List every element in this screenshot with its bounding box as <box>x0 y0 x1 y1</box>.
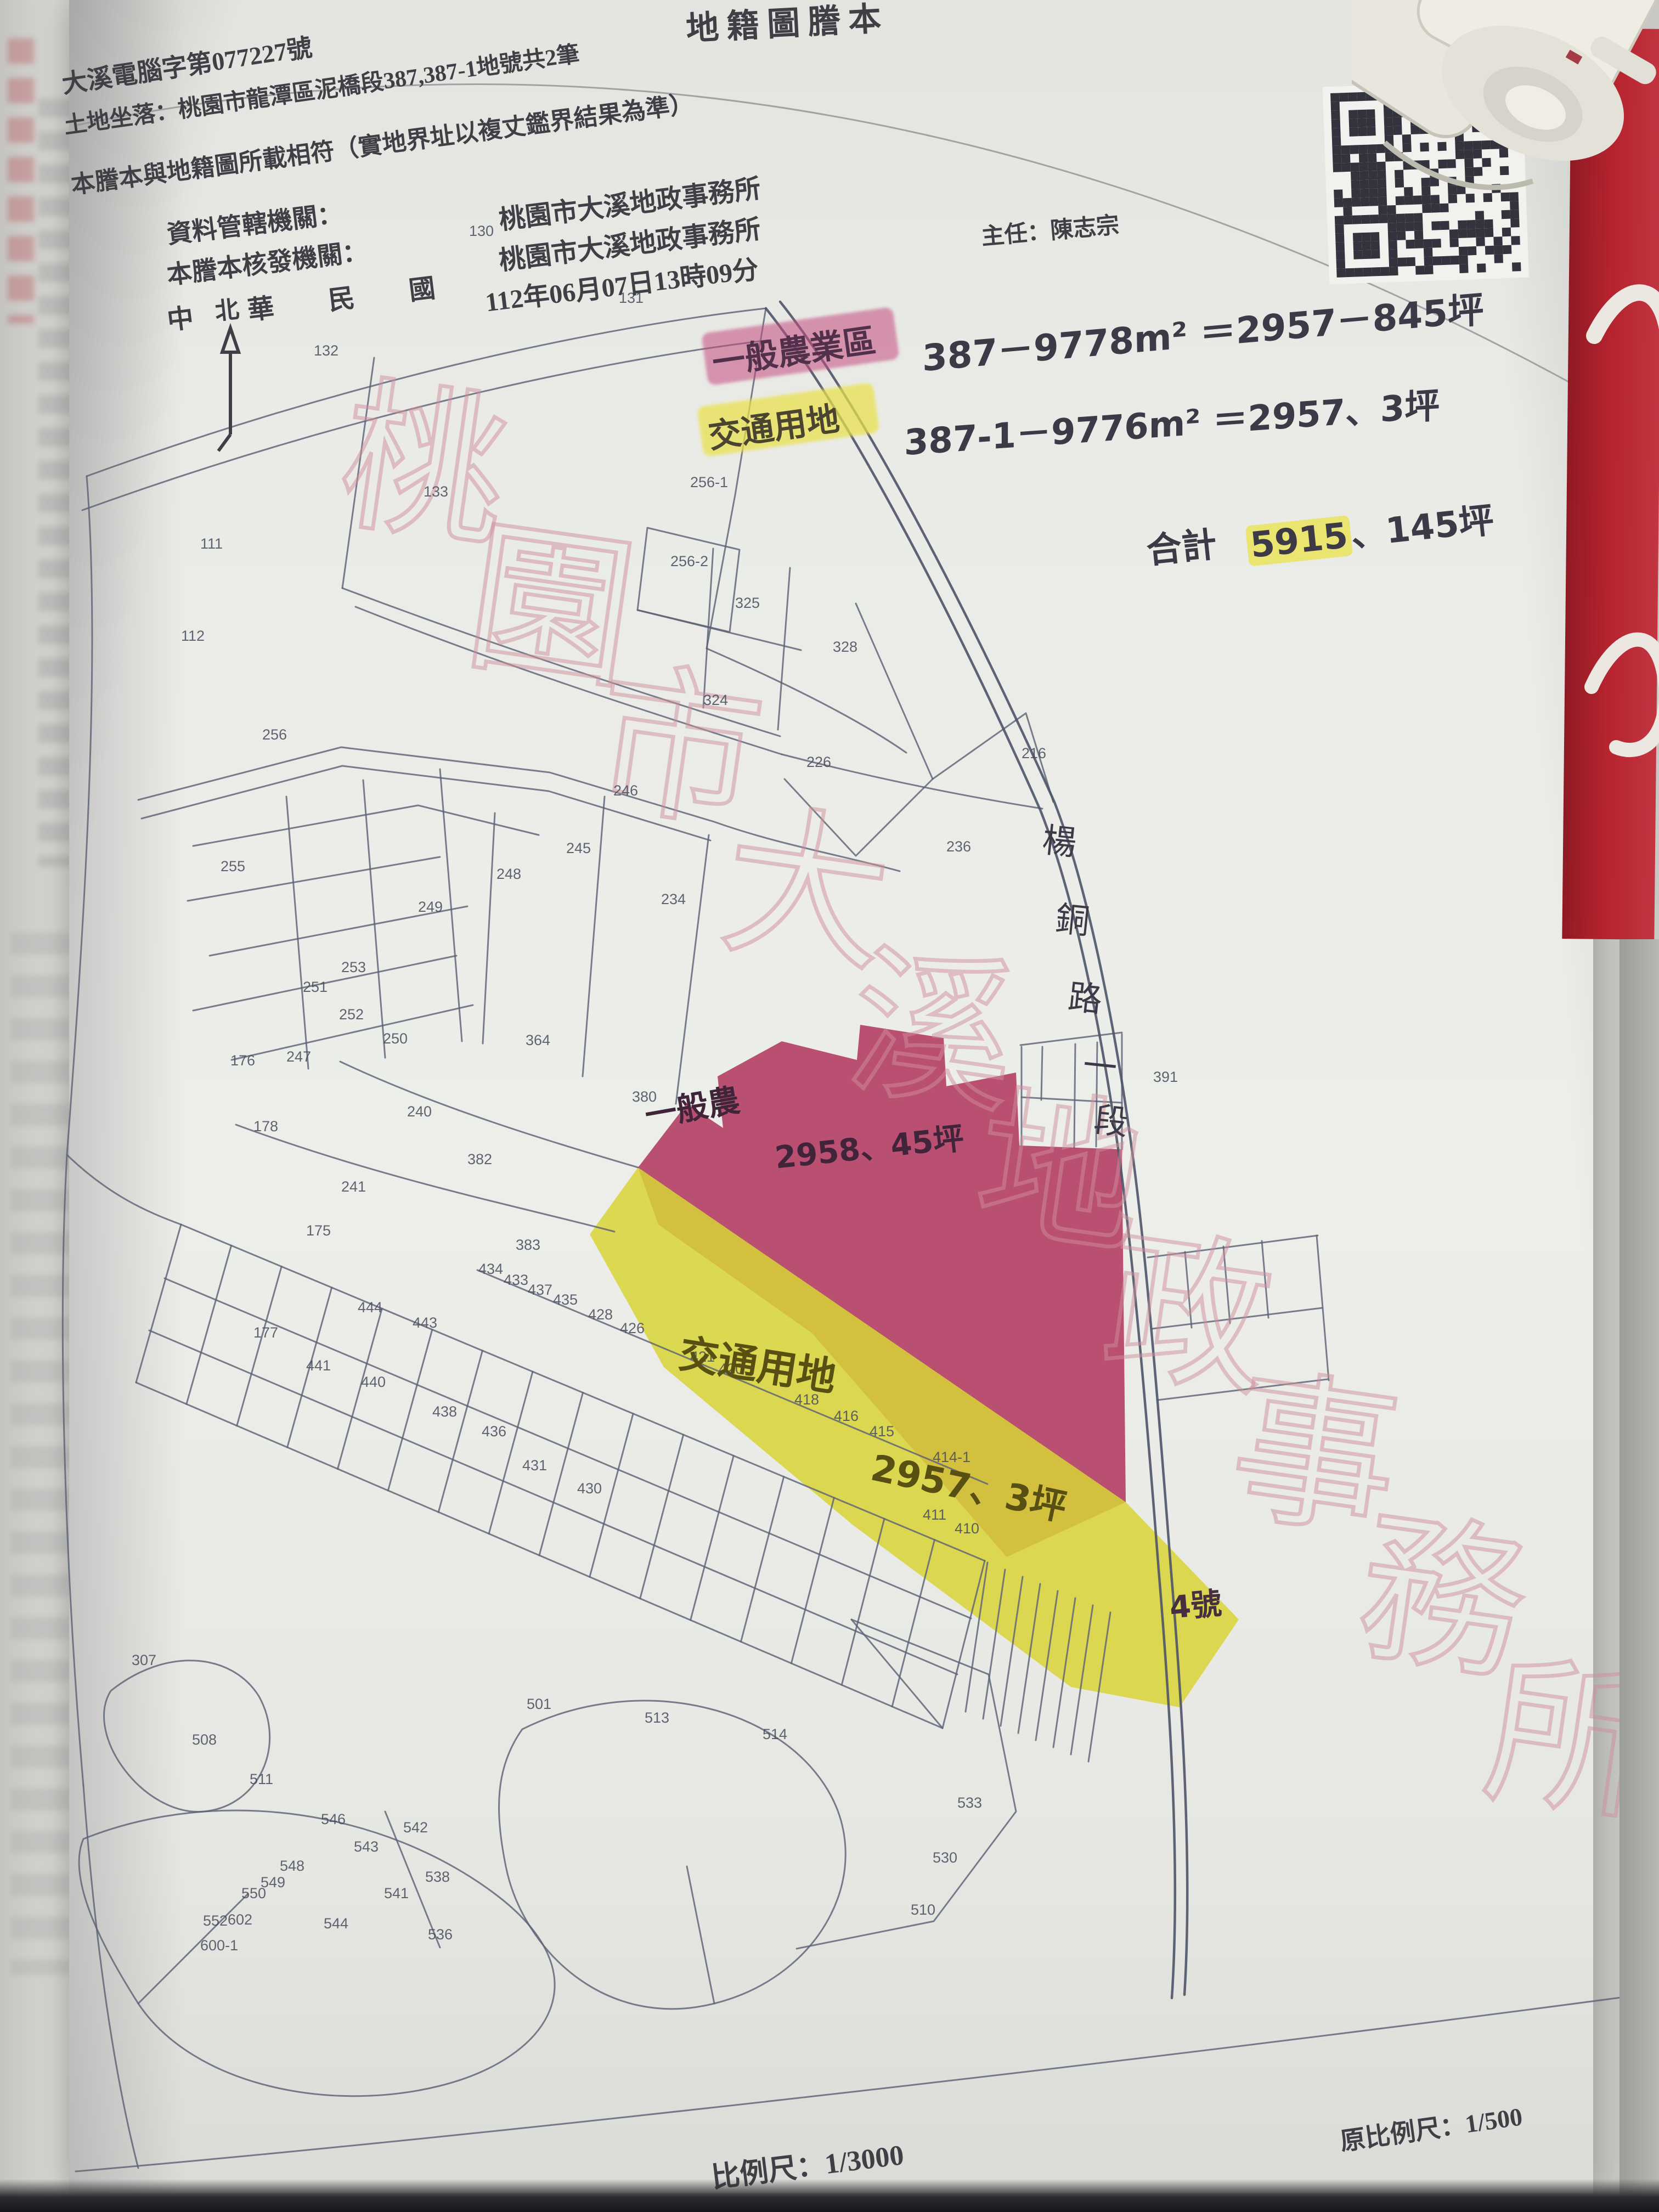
qr-module <box>1331 101 1340 111</box>
qr-module <box>1336 268 1346 278</box>
qr-module <box>1341 154 1351 163</box>
parcel-number: 253 <box>341 959 366 975</box>
parcel-number: 546 <box>321 1811 346 1827</box>
note-total-highlighted: 5915 <box>1245 515 1353 566</box>
qr-module <box>1333 154 1342 163</box>
note-total-label: 合計 <box>1144 516 1219 574</box>
parcel-number: 415 <box>870 1423 894 1440</box>
parcel-number: 410 <box>955 1520 979 1537</box>
parcel-number: 428 <box>588 1306 613 1323</box>
qr-module <box>1343 207 1352 216</box>
parcel-number: 328 <box>833 639 857 655</box>
parcel-number: 177 <box>253 1324 278 1341</box>
parcel-number: 552 <box>203 1912 228 1929</box>
qr-module <box>1341 145 1350 155</box>
qr-module <box>1344 216 1353 225</box>
parcel-number: 548 <box>280 1858 304 1874</box>
parcel-number: 542 <box>403 1819 428 1836</box>
parcel-number: 324 <box>703 692 728 708</box>
parcel-number: 256-1 <box>690 474 728 490</box>
qr-module <box>1335 224 1344 234</box>
parcel-number: 226 <box>806 754 831 770</box>
qr-module <box>1332 145 1341 155</box>
parcel-number: 247 <box>286 1048 311 1065</box>
parcel-number: 536 <box>428 1926 453 1943</box>
grid-parcel-divider <box>489 1372 533 1533</box>
parcel-number: 176 <box>230 1052 255 1069</box>
parcel-number: 256 <box>262 726 287 743</box>
parcel-number: 250 <box>383 1030 408 1047</box>
qr-module <box>1331 110 1340 120</box>
parcel-number: 544 <box>324 1915 348 1932</box>
parcel-number: 541 <box>384 1885 409 1901</box>
qr-module <box>1343 198 1352 207</box>
qr-module <box>1331 119 1341 128</box>
parcel-number: 236 <box>946 838 971 855</box>
parcel-number: 307 <box>132 1652 156 1668</box>
photo-bottom-shadow <box>0 2179 1659 2212</box>
grid-parcel-divider <box>438 1351 482 1512</box>
parcel-number: 538 <box>425 1869 450 1885</box>
parcel-number: 133 <box>424 483 448 500</box>
grid-parcel-divider <box>136 1224 181 1383</box>
qr-module <box>1334 198 1344 207</box>
parcel-number: 240 <box>407 1103 432 1120</box>
parcel-number: 600-1 <box>200 1937 238 1954</box>
parcel-number: 112 <box>181 628 205 644</box>
qr-module <box>1336 251 1345 260</box>
qr-module <box>1334 189 1343 199</box>
parcel-number: 130 <box>469 223 494 239</box>
parcel-number: 416 <box>834 1408 859 1424</box>
parcel-number: 441 <box>306 1357 331 1374</box>
parcel-number: 510 <box>911 1901 935 1918</box>
qr-module <box>1339 93 1348 102</box>
grid-parcel-divider <box>842 1519 884 1685</box>
qr-module <box>1335 242 1345 251</box>
parcel-number: 364 <box>526 1032 550 1048</box>
grid-parcel-divider <box>640 1435 684 1599</box>
parcel-number: 249 <box>418 899 443 915</box>
qr-module <box>1333 163 1342 172</box>
parcel-number: 256-2 <box>670 553 708 569</box>
parcel-number: 533 <box>957 1795 982 1811</box>
binder-clip <box>1352 0 1659 285</box>
desk-edge-right <box>1620 939 1659 2212</box>
grid-parcel-divider <box>539 1393 583 1556</box>
parcel-number: 433 <box>504 1272 528 1288</box>
parcel-number: 511 <box>250 1771 273 1787</box>
qr-module <box>1335 216 1344 225</box>
parcel-number: 431 <box>522 1457 547 1474</box>
parcel-number: 325 <box>735 595 760 611</box>
parcel-number: 430 <box>577 1480 602 1497</box>
parcel-number: 443 <box>413 1314 437 1331</box>
road-name-character: 段 <box>1092 1099 1130 1143</box>
parcel-number: 411 <box>923 1506 946 1523</box>
grid-parcel-divider <box>741 1477 784 1642</box>
qr-module <box>1332 137 1341 146</box>
parcel-number: 175 <box>306 1222 331 1239</box>
road-name-character: 楊 <box>1040 820 1078 863</box>
parcel-number: 245 <box>566 840 591 856</box>
qr-module <box>1331 128 1341 137</box>
grid-parcel-divider <box>791 1498 834 1663</box>
parcel-number: 391 <box>1153 1069 1178 1085</box>
parcel-number: 508 <box>192 1731 217 1748</box>
parcel-number: 383 <box>516 1237 540 1253</box>
grid-parcel-divider <box>388 1330 432 1491</box>
parcel-number: 513 <box>645 1709 669 1726</box>
parcel-number: 111 <box>200 535 223 552</box>
grid-parcel-divider <box>187 1245 232 1404</box>
parcel-number: 132 <box>314 342 338 359</box>
parcel-number: 251 <box>303 979 328 995</box>
parcel-number: 241 <box>341 1178 366 1195</box>
road-name-character: 銅 <box>1053 898 1091 941</box>
parcel-number: 426 <box>620 1320 645 1336</box>
road-name-character: 路 <box>1066 977 1104 1020</box>
parcel-number: 440 <box>361 1374 386 1390</box>
road-name-character: 一 <box>1081 1045 1119 1088</box>
parcel-number: 216 <box>1022 745 1046 761</box>
qr-module <box>1336 259 1346 269</box>
parcel-number: 501 <box>527 1696 551 1712</box>
parcel-number: 550 <box>241 1885 266 1901</box>
qr-module <box>1341 163 1351 172</box>
parcel-number: 438 <box>432 1403 457 1420</box>
parcel-number: 436 <box>482 1423 506 1440</box>
north-arrow-icon <box>218 328 239 451</box>
qr-module <box>1330 93 1340 102</box>
parcel-number: 382 <box>467 1151 492 1167</box>
parcel-number: 248 <box>496 866 521 882</box>
grid-parcel-divider <box>691 1455 734 1620</box>
map-house-number: 4號 <box>1167 1579 1223 1628</box>
parcel-number: 178 <box>253 1118 278 1135</box>
parcel-number: 246 <box>613 782 638 799</box>
parcel-number: 602 <box>228 1911 252 1928</box>
qr-module <box>1335 233 1345 242</box>
parcel-number: 530 <box>933 1849 957 1866</box>
grid-parcel-divider <box>237 1267 281 1426</box>
parcel-number: 444 <box>358 1299 382 1316</box>
parcel-number: 234 <box>661 891 686 907</box>
parcel-number: 543 <box>354 1838 379 1855</box>
photo-of-cadastral-transcript: 桃園市大溪地政事務所 130131132133111112256-1256-23… <box>0 0 1659 2212</box>
parcel-number: 255 <box>221 858 245 874</box>
parcel-number: 514 <box>763 1726 787 1742</box>
parcel-number: 434 <box>478 1261 503 1277</box>
parcel-number: 252 <box>339 1006 364 1023</box>
parcel-number: 437 <box>528 1282 552 1298</box>
parcel-number: 435 <box>553 1291 578 1308</box>
